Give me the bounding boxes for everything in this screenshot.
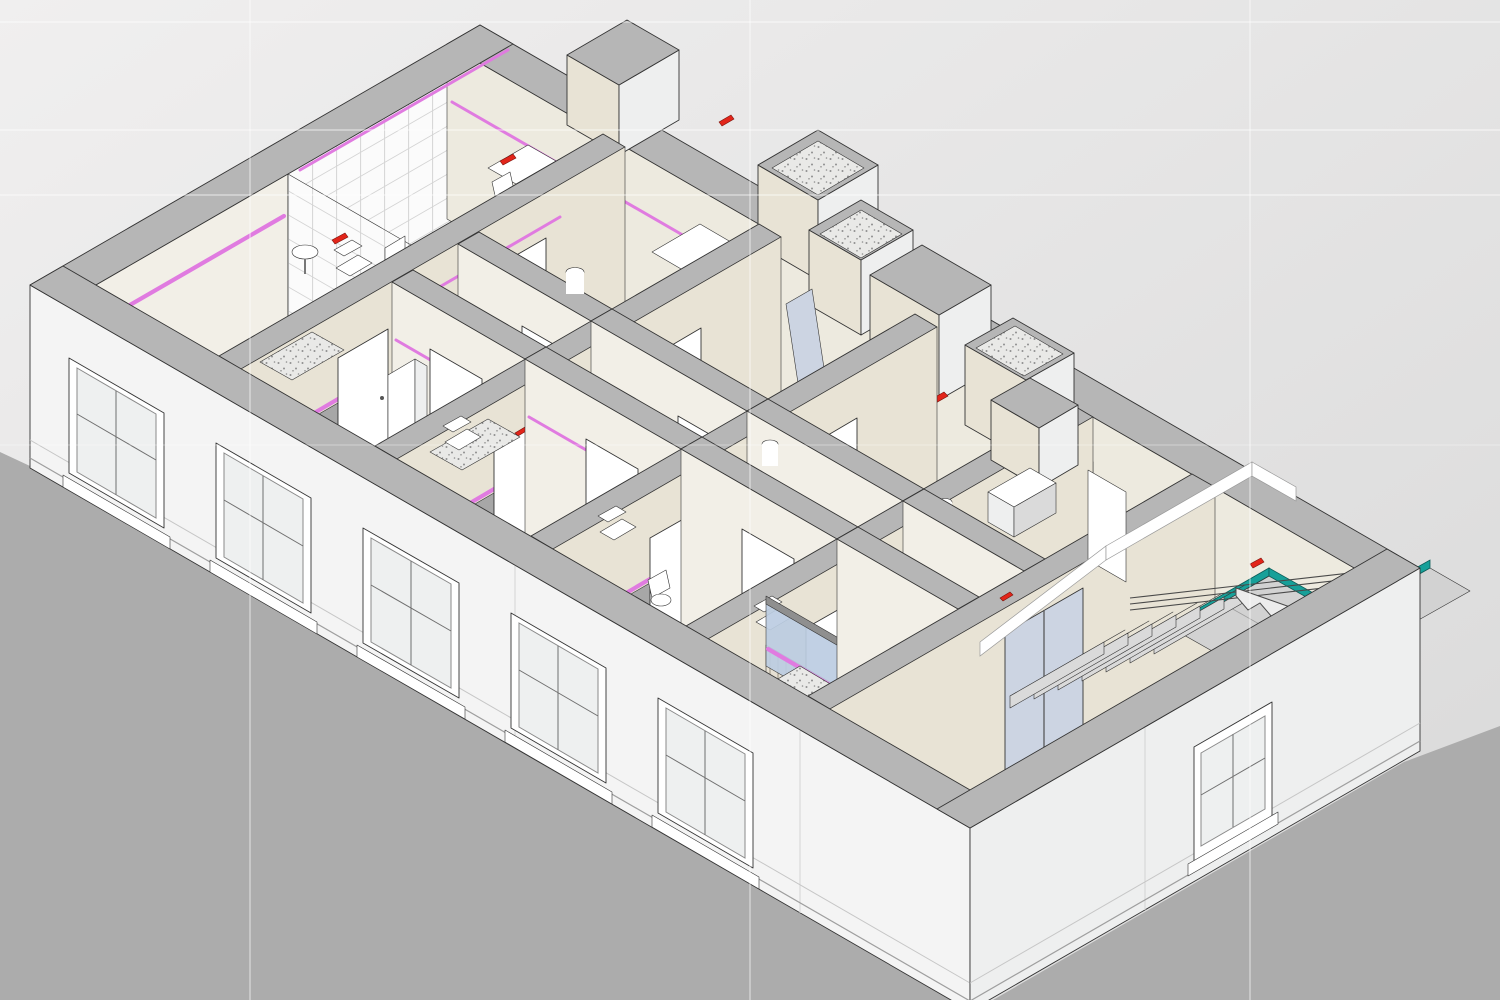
- isometric-render: [0, 0, 1500, 1000]
- chair-seat: [651, 594, 671, 606]
- viewport-3d[interactable]: [0, 0, 1500, 1000]
- wall-light-body: [566, 272, 584, 294]
- door-handle: [380, 396, 384, 400]
- sink: [292, 245, 318, 259]
- wall-light-body: [762, 444, 778, 466]
